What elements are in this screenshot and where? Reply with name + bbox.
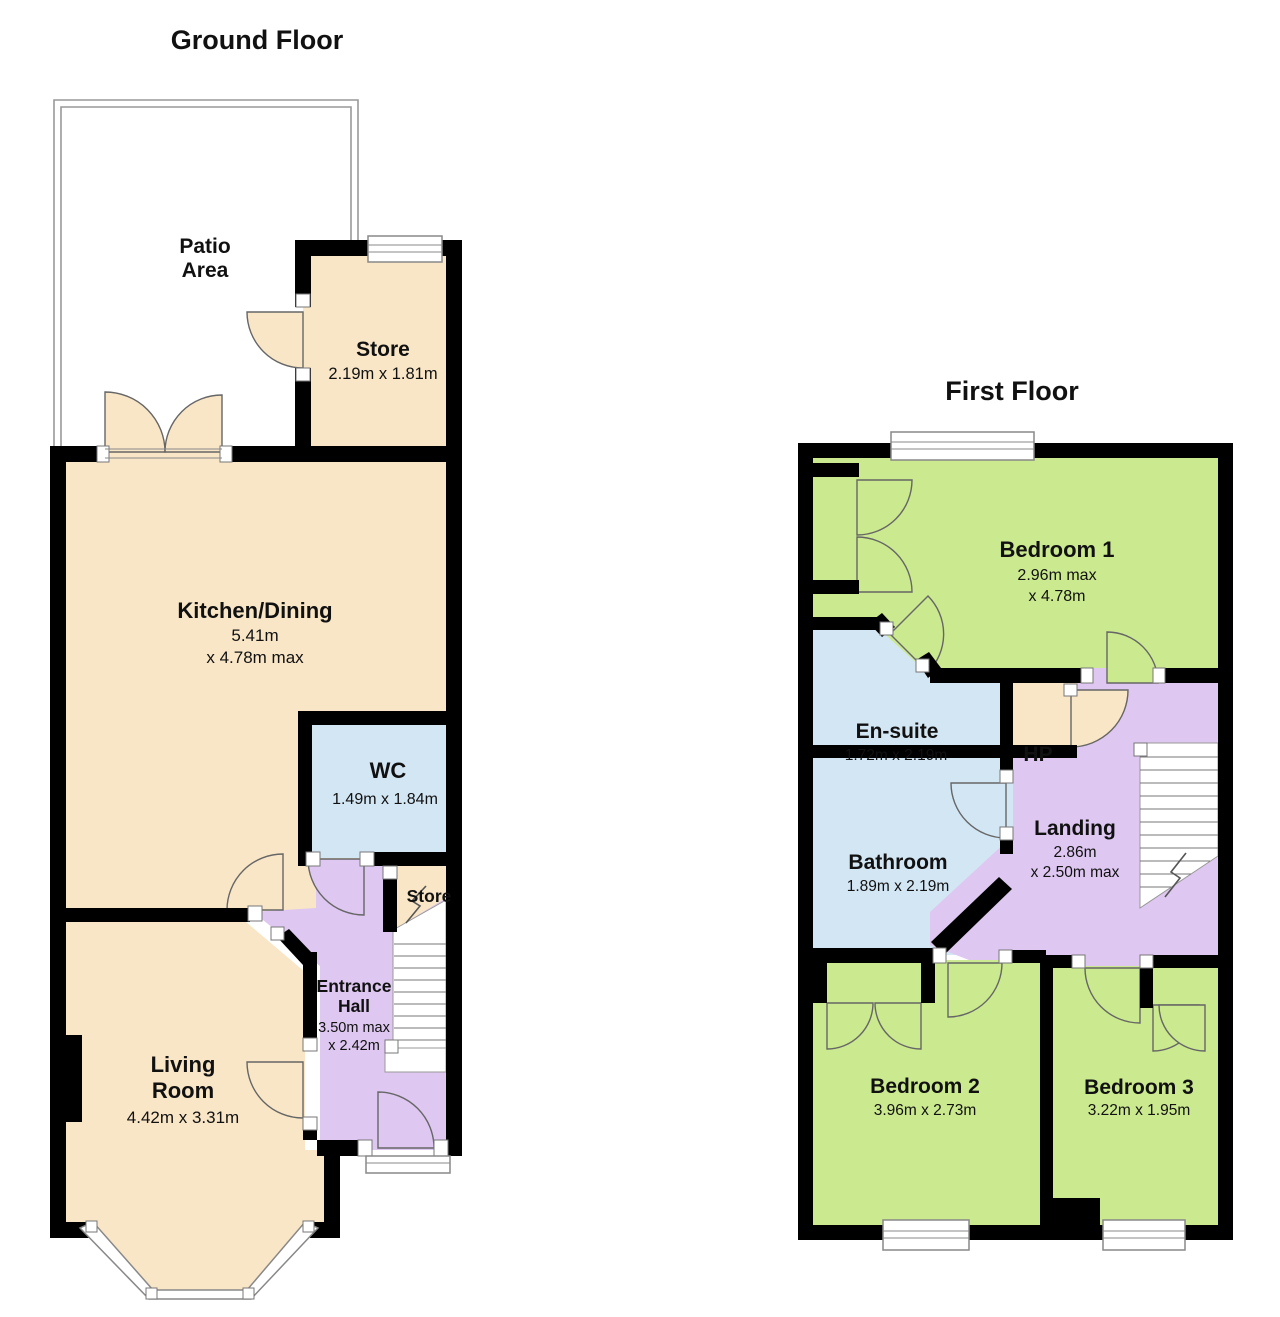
- window-store-top: [368, 236, 442, 262]
- kitchen-dim1: 5.41m: [231, 626, 278, 645]
- door-french-left: [105, 392, 165, 452]
- window-bedroom2: [883, 1220, 969, 1250]
- landing-dim2: x 2.50m max: [1031, 864, 1120, 881]
- hall-dim2: x 2.42m: [328, 1038, 380, 1054]
- bedroom2-label: Bedroom 2: [870, 1075, 980, 1098]
- bedroom3-label: Bedroom 3: [1084, 1076, 1194, 1099]
- door-store-top: [247, 312, 303, 368]
- hp-label: HP: [1023, 743, 1052, 766]
- patio-label-line1: Patio: [179, 235, 230, 258]
- flue-block: [1040, 1198, 1100, 1230]
- living-dims: 4.42m x 3.31m: [127, 1108, 239, 1127]
- floor-plan-page: Ground Floor Patio Area Store 2.19m x 1.…: [0, 0, 1280, 1317]
- ensuite-label: En-suite: [856, 720, 939, 743]
- bedroom2-dims: 3.96m x 2.73m: [874, 1102, 977, 1119]
- room-wc: [304, 715, 448, 858]
- landing-label: Landing: [1034, 817, 1116, 840]
- bathroom-label: Bathroom: [848, 851, 947, 874]
- living-label-line1: Living: [151, 1052, 216, 1077]
- front-door-step: [366, 1156, 450, 1173]
- landing-dim1: 2.86m: [1053, 844, 1096, 861]
- store-small-label: Store: [407, 886, 452, 906]
- hall-dim1: 3.50m max: [318, 1020, 390, 1036]
- hall-label-line1: Entrance: [317, 976, 392, 996]
- bedroom1-dim1: 2.96m max: [1017, 567, 1096, 584]
- bedroom1-label: Bedroom 1: [1000, 537, 1115, 562]
- bedroom1-dim2: x 4.78m: [1029, 588, 1086, 605]
- window-bedroom3: [1103, 1220, 1185, 1250]
- ensuite-dims: 1.72m x 2.19m: [845, 747, 948, 764]
- kitchen-dim2: x 4.78m max: [206, 648, 304, 667]
- bedroom1-wardrobe: [813, 463, 859, 594]
- ground-floor-plan: Ground Floor Patio Area Store 2.19m x 1.…: [50, 25, 462, 1299]
- window-bedroom1: [891, 432, 1034, 460]
- chimney-breast: [66, 1035, 82, 1122]
- bathroom-dims: 1.89m x 2.19m: [847, 878, 950, 895]
- door-french-right: [165, 395, 222, 452]
- wc-label: WC: [370, 758, 407, 783]
- floor-plan-drawing: Ground Floor Patio Area Store 2.19m x 1.…: [0, 0, 1280, 1317]
- first-floor-plan: First Floor Bedroom 1 2.96m max x 4.78m …: [798, 376, 1233, 1250]
- living-label-line2: Room: [152, 1078, 214, 1103]
- hall-label-line2: Hall: [338, 996, 370, 1016]
- ground-floor-title: Ground Floor: [171, 25, 344, 55]
- bedroom3-dims: 3.22m x 1.95m: [1088, 1102, 1191, 1119]
- wc-dims: 1.49m x 1.84m: [332, 791, 438, 808]
- store-top-dims: 2.19m x 1.81m: [328, 365, 437, 383]
- first-floor-title: First Floor: [945, 376, 1079, 406]
- kitchen-label: Kitchen/Dining: [177, 598, 332, 623]
- store-top-label: Store: [356, 338, 410, 361]
- patio-label-line2: Area: [182, 259, 229, 282]
